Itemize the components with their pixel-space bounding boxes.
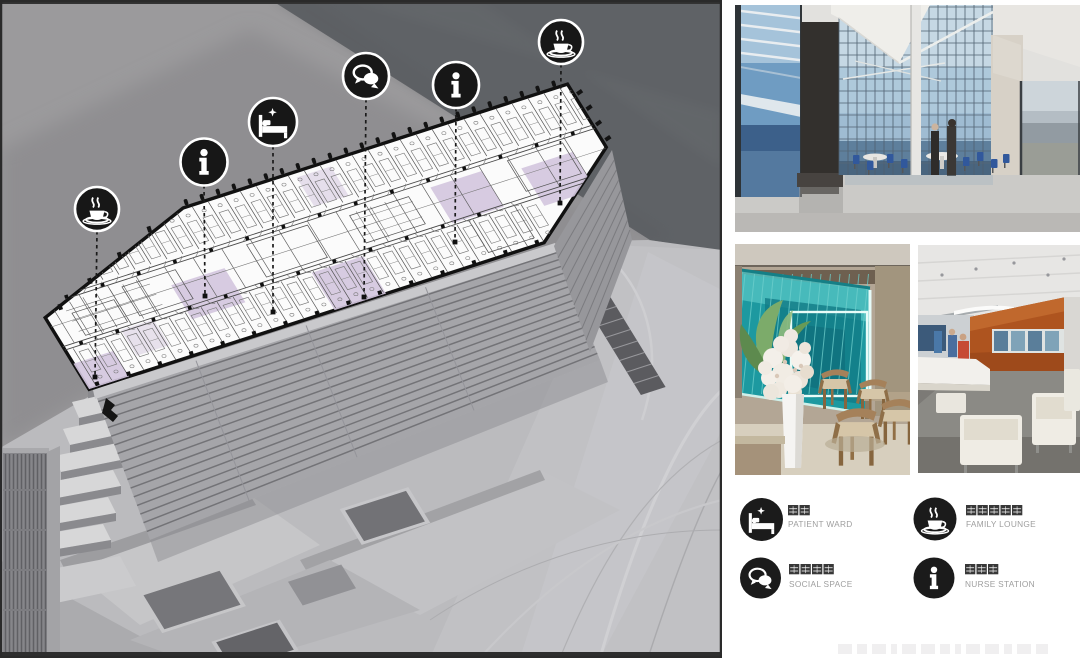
svg-text:FAMILY LOUNGE: FAMILY LOUNGE	[966, 519, 1036, 529]
svg-text:SOCIAL SPACE: SOCIAL SPACE	[789, 579, 853, 589]
svg-text:NURSE STATION: NURSE STATION	[965, 579, 1035, 589]
svg-text:PATIENT WARD: PATIENT WARD	[788, 519, 853, 529]
